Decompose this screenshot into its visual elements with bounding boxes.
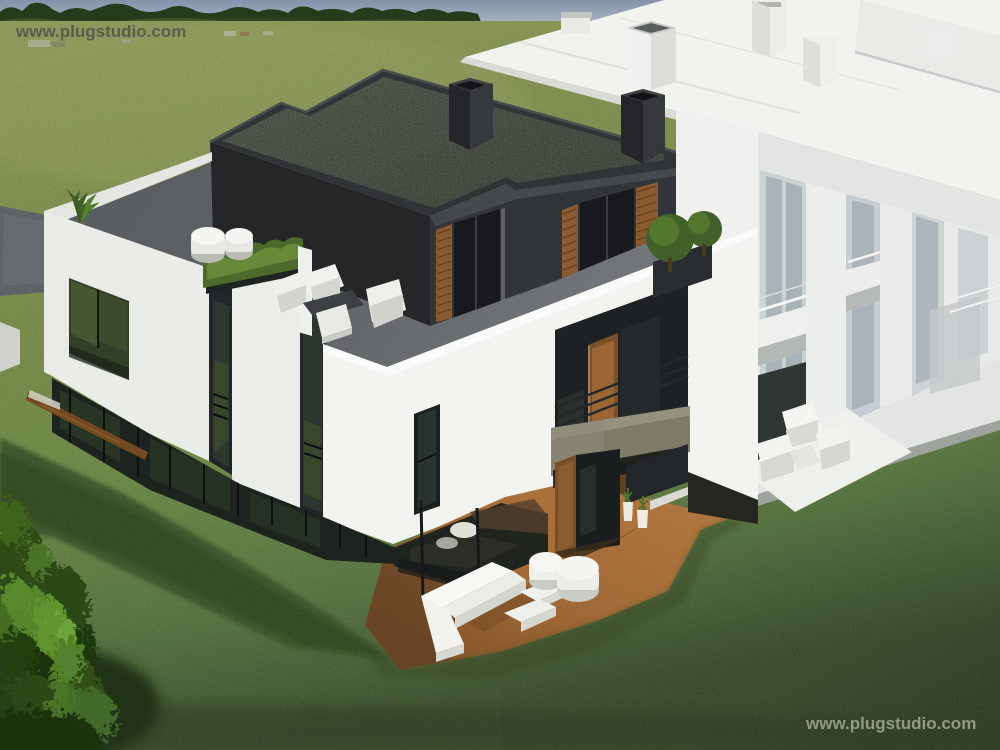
svg-text:www.plugstudio.com: www.plugstudio.com — [15, 22, 186, 41]
svg-text:www.plugstudio.com: www.plugstudio.com — [805, 714, 976, 733]
